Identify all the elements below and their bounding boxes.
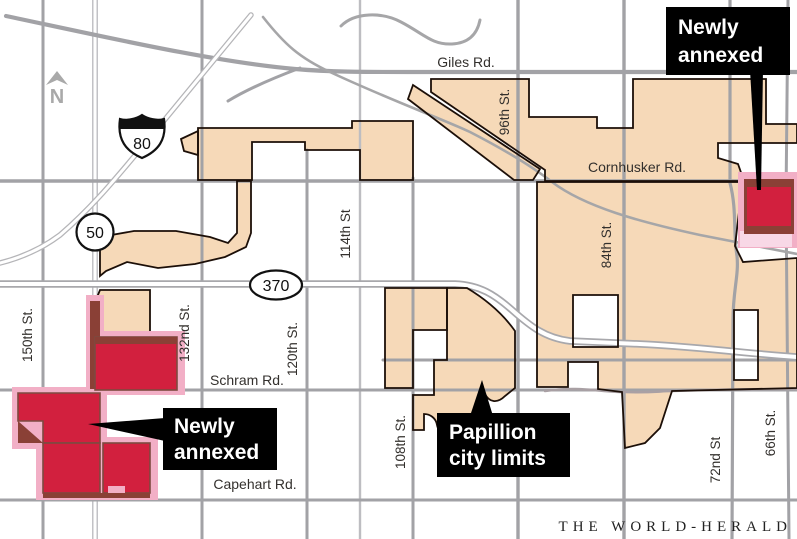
annexed-parcel (43, 443, 100, 493)
hwy50-shield-label: 50 (86, 225, 104, 242)
interstate-80-shield: 80 (119, 115, 164, 158)
map-canvas: 80 50 370 N Giles Rd. Cornhusker Rd. Sch… (0, 0, 797, 539)
callout-ne-line2: annexed (678, 44, 763, 67)
annexed-parcel-notch (108, 486, 125, 493)
north-arrow-icon (46, 71, 68, 85)
road-top-squiggle (341, 15, 480, 44)
callout-city-line1: Papillion (449, 421, 537, 444)
label-72nd-st: 72nd St (708, 436, 723, 483)
i80-shield-top-band (120, 115, 164, 129)
label-giles-rd: Giles Rd. (437, 54, 495, 70)
label-150th-st: 150th St. (20, 308, 35, 362)
annexed-parcel-top-edge (95, 337, 177, 344)
annexed-ne-parcel (738, 172, 797, 248)
north-arrow-label: N (50, 86, 64, 108)
annexed-parcel (103, 443, 150, 493)
annexed-parcel (95, 337, 177, 390)
label-96th-st: 96th St. (497, 89, 512, 136)
city-area-west-blob (100, 181, 251, 276)
papillion-annexation-map: 80 50 370 N Giles Rd. Cornhusker Rd. Sch… (0, 0, 797, 539)
i80-shield-label: 80 (133, 136, 151, 153)
annexed-ne-red (747, 187, 791, 226)
callout-sw-line1: Newly (174, 415, 235, 438)
label-84th-st: 84th St. (599, 222, 614, 269)
label-schram-rd: Schram Rd. (210, 372, 284, 388)
label-108th-st: 108th St. (393, 415, 408, 469)
label-capehart-rd: Capehart Rd. (213, 476, 296, 492)
label-66th-st: 66th St. (763, 410, 778, 457)
callout-city-line2: city limits (449, 447, 546, 470)
hwy-370-shield: 370 (250, 271, 302, 300)
callout-sw-line2: annexed (174, 441, 259, 464)
credit-world-herald: THE WORLD-HERALD (559, 519, 792, 535)
label-114th-st: 114th St (338, 209, 353, 259)
label-132nd-st: 132nd St. (177, 304, 192, 362)
callout-ne-line1: Newly (678, 16, 739, 39)
north-arrow: N (46, 71, 68, 108)
label-cornhusker-rd: Cornhusker Rd. (588, 159, 686, 175)
hwy370-shield-label: 370 (263, 278, 290, 295)
road-giles-tail (228, 68, 300, 101)
label-120th-st: 120th St. (285, 322, 300, 376)
annexed-parcel-bottom-edge (43, 493, 150, 498)
hwy-50-shield: 50 (77, 214, 114, 251)
